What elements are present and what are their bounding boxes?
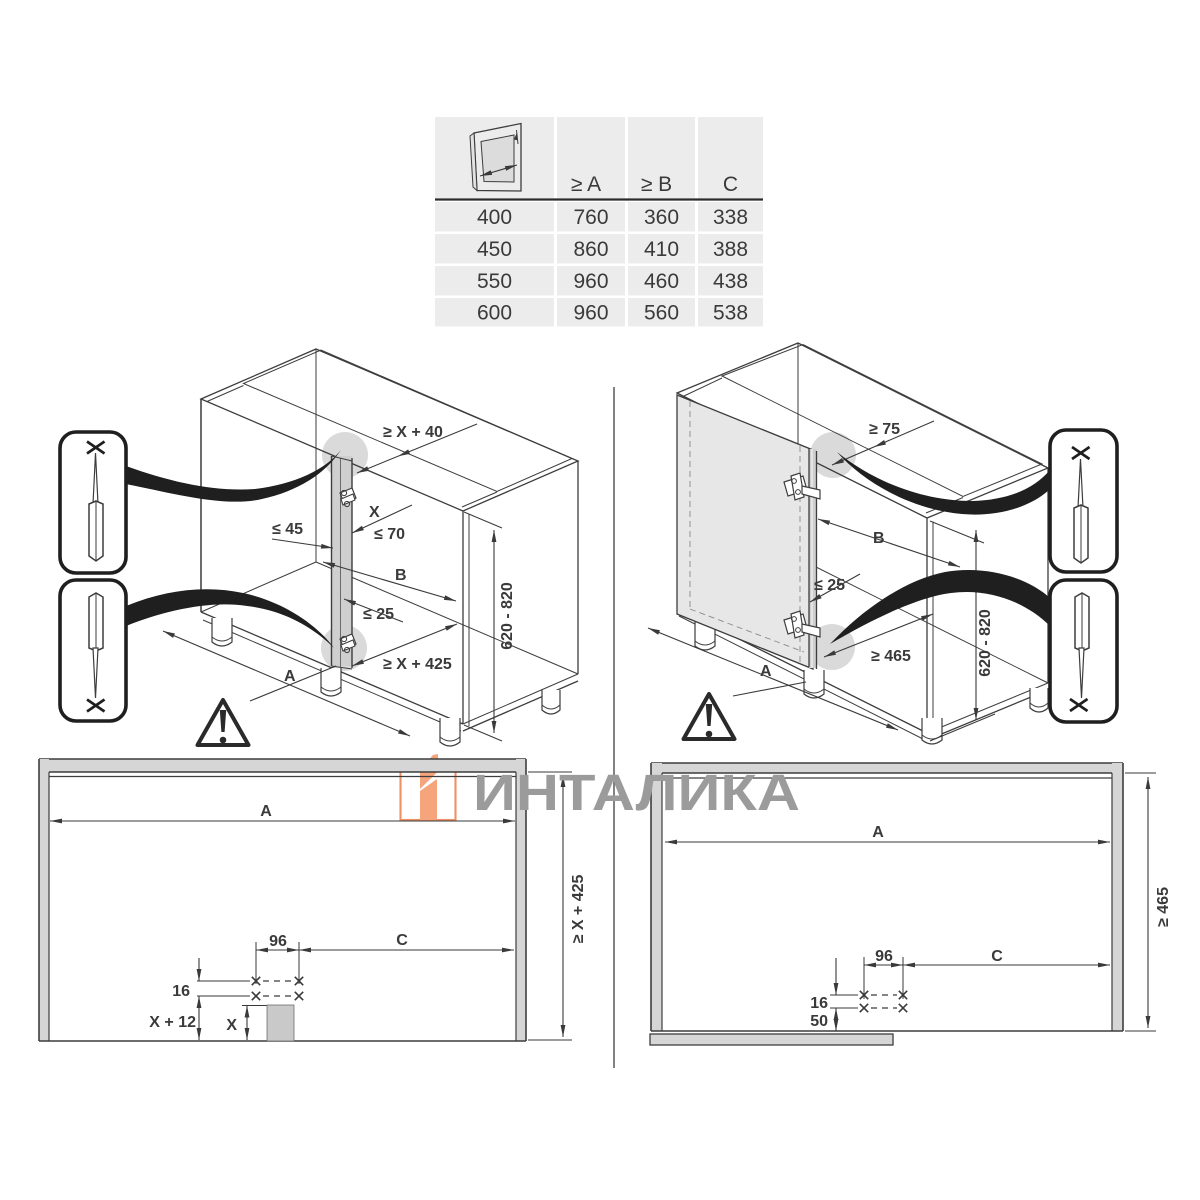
svg-text:760: 760: [573, 206, 608, 229]
svg-text:A: A: [260, 803, 272, 820]
svg-text:50: 50: [810, 1013, 828, 1030]
svg-text:360: 360: [644, 206, 679, 229]
svg-text:X: X: [226, 1017, 237, 1034]
svg-text:A: A: [872, 824, 884, 841]
svg-text:C: C: [991, 948, 1003, 965]
svg-text:538: 538: [713, 301, 748, 324]
svg-text:≤ 25: ≤ 25: [814, 577, 845, 594]
svg-text:338: 338: [713, 206, 748, 229]
svg-text:C: C: [396, 932, 408, 949]
svg-text:≥ A: ≥ A: [571, 173, 601, 196]
svg-text:≥ B: ≥ B: [641, 173, 672, 196]
svg-text:96: 96: [875, 948, 893, 965]
svg-text:≥ X + 425: ≥ X + 425: [383, 656, 452, 673]
svg-text:16: 16: [810, 995, 828, 1012]
svg-text:X: X: [369, 504, 380, 521]
svg-text:X + 12: X + 12: [149, 1014, 196, 1031]
svg-text:≥ X + 425: ≥ X + 425: [570, 874, 587, 943]
svg-text:560: 560: [644, 301, 679, 324]
svg-text:960: 960: [573, 301, 608, 324]
svg-text:ИНТАЛИКА: ИНТАЛИКА: [473, 764, 800, 821]
svg-text:≤ 45: ≤ 45: [272, 521, 303, 538]
svg-text:450: 450: [477, 238, 512, 261]
svg-text:438: 438: [713, 270, 748, 293]
svg-text:A: A: [760, 663, 772, 680]
svg-text:600: 600: [477, 301, 512, 324]
svg-text:≥ 75: ≥ 75: [869, 421, 900, 438]
svg-text:≥ 465: ≥ 465: [1155, 887, 1172, 927]
svg-text:≤ 70: ≤ 70: [374, 526, 405, 543]
svg-text:B: B: [873, 530, 885, 547]
svg-text:960: 960: [573, 270, 608, 293]
svg-text:620 - 820: 620 - 820: [499, 582, 516, 650]
svg-text:460: 460: [644, 270, 679, 293]
svg-text:≥ 465: ≥ 465: [871, 648, 911, 665]
svg-text:≤ 25: ≤ 25: [363, 606, 394, 623]
svg-text:400: 400: [477, 206, 512, 229]
svg-text:B: B: [395, 567, 407, 584]
svg-text:96: 96: [269, 933, 287, 950]
svg-text:410: 410: [644, 238, 679, 261]
svg-text:620 - 820: 620 - 820: [977, 609, 994, 677]
svg-text:388: 388: [713, 238, 748, 261]
svg-text:C: C: [723, 173, 738, 196]
svg-text:≥ X + 40: ≥ X + 40: [383, 424, 443, 441]
svg-text:16: 16: [172, 983, 190, 1000]
svg-text:860: 860: [573, 238, 608, 261]
svg-text:550: 550: [477, 270, 512, 293]
